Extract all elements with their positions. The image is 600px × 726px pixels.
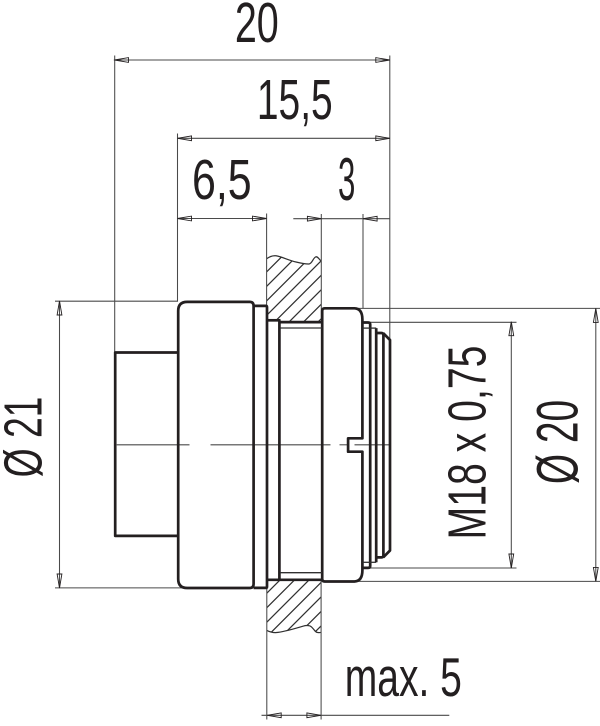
svg-text:Ø 21: Ø 21: [0, 397, 53, 478]
svg-text:max. 5: max. 5: [345, 648, 462, 709]
svg-text:20: 20: [235, 0, 279, 55]
svg-text:3: 3: [338, 147, 355, 213]
svg-text:15,5: 15,5: [257, 69, 333, 132]
svg-text:6,5: 6,5: [192, 148, 252, 211]
svg-text:Ø 20: Ø 20: [526, 400, 591, 484]
svg-text:M18 x 0,75: M18 x 0,75: [436, 346, 497, 540]
